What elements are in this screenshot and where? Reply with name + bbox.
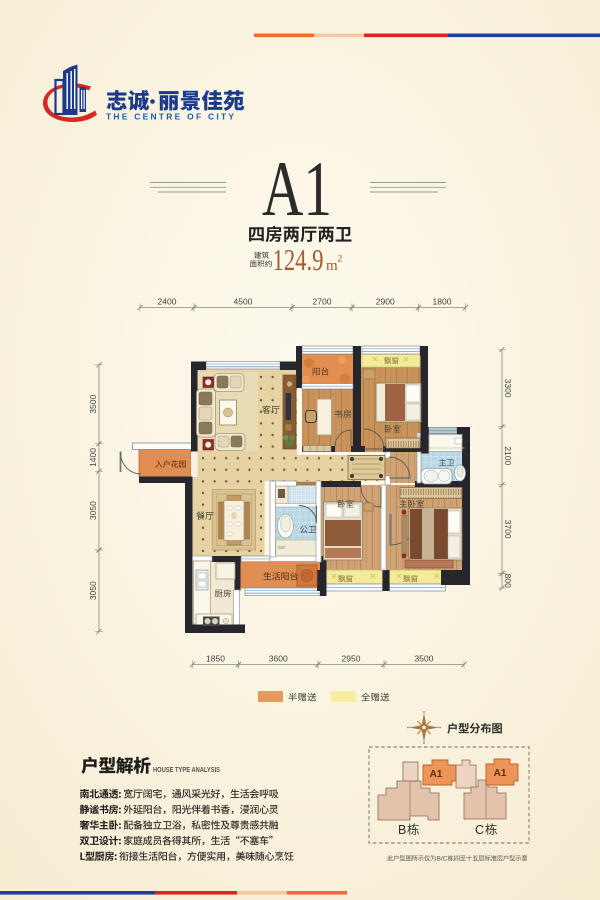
svg-text:1400: 1400 <box>88 448 98 467</box>
svg-text:800: 800 <box>503 574 513 588</box>
svg-text:124.9: 124.9 <box>273 243 324 277</box>
svg-text:A1: A1 <box>430 769 443 780</box>
svg-text:m: m <box>326 258 338 274</box>
svg-text:3050: 3050 <box>88 501 98 520</box>
svg-text:1800: 1800 <box>433 297 452 307</box>
svg-text:3500: 3500 <box>415 654 434 664</box>
svg-text:2400: 2400 <box>158 297 177 307</box>
svg-text:A1: A1 <box>494 768 507 779</box>
svg-text:4500: 4500 <box>234 297 253 307</box>
svg-text:2950: 2950 <box>342 654 361 664</box>
svg-text:B: B <box>398 823 406 837</box>
svg-text:C: C <box>475 823 484 837</box>
svg-text:2900: 2900 <box>376 297 395 307</box>
svg-text:2700: 2700 <box>313 297 332 307</box>
svg-text:THE CENTRE OF CITY: THE CENTRE OF CITY <box>106 112 236 122</box>
svg-text:A1: A1 <box>262 145 332 232</box>
svg-text:3300: 3300 <box>503 379 513 398</box>
svg-text:2: 2 <box>338 255 343 265</box>
svg-text:HOUSE TYPE ANALYSIS: HOUSE TYPE ANALYSIS <box>153 767 220 774</box>
svg-text:3050: 3050 <box>88 581 98 600</box>
svg-text:3500: 3500 <box>88 395 98 414</box>
svg-text:3700: 3700 <box>503 520 513 539</box>
svg-text:2100: 2100 <box>503 446 513 465</box>
svg-text:1850: 1850 <box>206 654 225 664</box>
svg-text:B/C: B/C <box>437 856 448 863</box>
svg-text:3600: 3600 <box>269 654 288 664</box>
